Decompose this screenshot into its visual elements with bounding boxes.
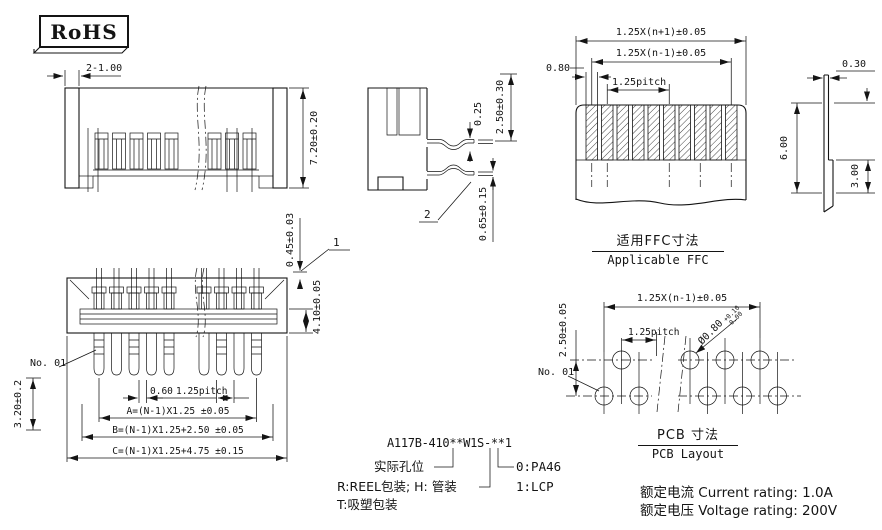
bv-tab-dim: 0.45±0.03 <box>285 213 296 267</box>
fv-height-dim: 7.20±0.20 <box>309 111 320 165</box>
bv-pitch-dim: 1.25pitch <box>176 386 227 397</box>
break-line <box>195 86 206 190</box>
break-line <box>657 336 686 412</box>
ffc-span-dim: 1.25X(n-1)±0.05 <box>616 48 706 59</box>
ffc-exposed-dim: 3.00 <box>850 164 861 188</box>
pcb-pitch-dim: 1.25pitch <box>628 327 679 338</box>
bottom-view: 0.45±0.03 1 4.10±0.05 No. 01 3.20±0.2 0.… <box>13 213 350 462</box>
pcb-span-dim: 1.25X(n-1)±0.05 <box>637 293 727 304</box>
pcb-rows-dim: 2.50±0.05 <box>558 303 569 357</box>
ffc-top-view: 1.25X(n+1)±0.05 1.25X(n-1)±0.05 0.80 1.2… <box>546 27 746 205</box>
part-number-material-1: 1:LCP <box>516 479 554 494</box>
side-view: 2.50±0.30 0.25 0.65±0.15 2 <box>368 74 517 242</box>
sv-callout: 2 <box>424 208 431 221</box>
sv-gap-dim: 0.25 <box>473 102 484 126</box>
bv-a-dim: A=(N-1)X1.25 ±0.05 <box>127 406 230 417</box>
ffc-pitch-dim: 1.25pitch <box>612 77 666 88</box>
bv-callout: 1 <box>333 236 340 249</box>
pcb-caption-en: PCB Layout <box>638 446 738 461</box>
ffc-thickness-dim: 0.30 <box>842 59 866 70</box>
bv-slot-dim: 0.60 <box>150 386 173 397</box>
part-number-legend-hole: 实际孔位 <box>374 459 424 474</box>
ffc-caption: 适用FFC寸法 Applicable FFC <box>592 230 724 267</box>
ffc-overall-dim: 1.25X(n+1)±0.05 <box>616 27 706 38</box>
pcb-caption-zh: PCB 寸法 <box>638 424 738 446</box>
part-number-code: A117B-410**W1S-**1 <box>387 436 512 450</box>
ffc-length-dim: 6.00 <box>779 136 790 160</box>
part-number-legend-pack-b: T:吸塑包装 <box>337 497 397 512</box>
bv-pin1-label: No. 01 <box>30 358 66 369</box>
pcb-layout: 1.25X(n-1)±0.05 2.50±0.05 1.25pitch Ø0.8… <box>538 293 801 414</box>
ffc-conductor-dim: 0.80 <box>546 63 570 74</box>
fv-wall-dim: 2-1.00 <box>86 63 122 74</box>
drawing-sheet: RoHS 2-1.00 7.20±0.20 2.50±0 <box>0 0 882 530</box>
current-rating: 额定电流 Current rating: 1.0A <box>640 485 833 501</box>
ffc-caption-en: Applicable FFC <box>592 252 724 267</box>
voltage-rating: 额定电压 Voltage rating: 200V <box>640 503 837 519</box>
sv-height-dim: 2.50±0.30 <box>495 80 506 134</box>
ffc-side-view: 0.30 6.00 3.00 <box>779 59 875 212</box>
front-view: 2-1.00 7.20±0.20 <box>47 63 320 192</box>
bv-tail-dim: 3.20±0.2 <box>13 380 24 428</box>
bv-b-dim: B=(N-1)X1.25+2.50 ±0.05 <box>112 425 244 436</box>
pcb-caption: PCB 寸法 PCB Layout <box>638 424 738 461</box>
bv-c-dim: C=(N-1)X1.25+4.75 ±0.15 <box>112 446 244 457</box>
rohs-label: RoHS <box>50 20 117 44</box>
ffc-caption-zh: 适用FFC寸法 <box>592 230 724 252</box>
bv-depth-dim: 4.10±0.05 <box>312 280 323 334</box>
part-number-legend-pack-a: R:REEL包装; H: 管装 <box>337 479 457 494</box>
sv-pin-dim: 0.65±0.15 <box>478 187 489 241</box>
part-number-material-0: 0:PA46 <box>516 459 561 474</box>
rohs-logo: RoHS <box>34 16 128 53</box>
drawing-linework: RoHS 2-1.00 7.20±0.20 2.50±0 <box>0 0 882 530</box>
